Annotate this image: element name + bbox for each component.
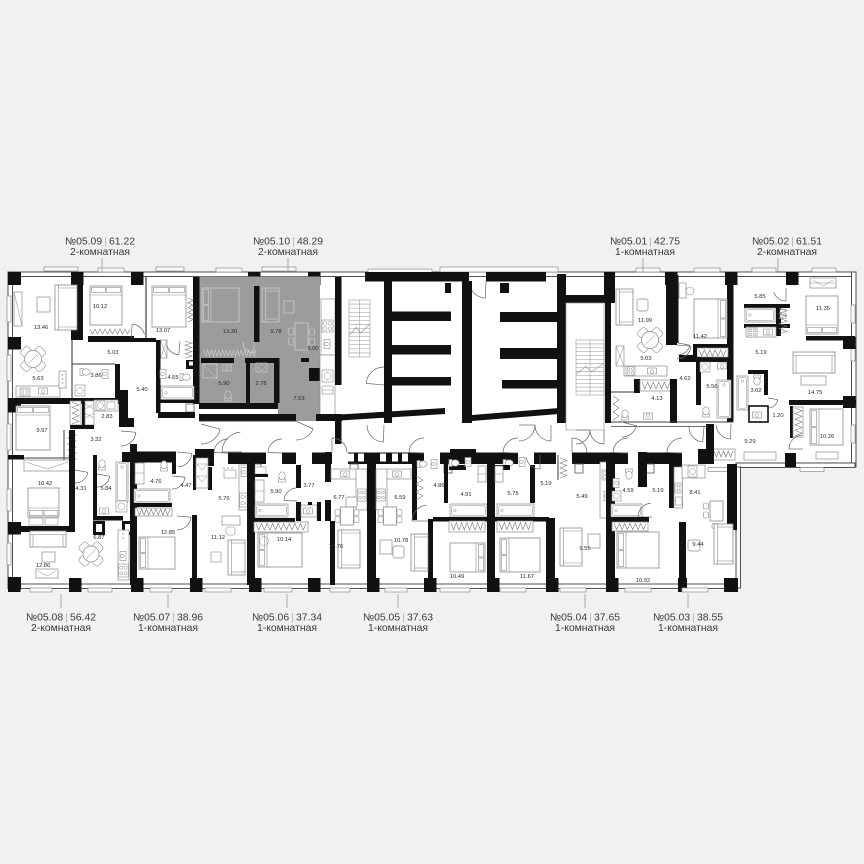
svg-text:№05.06 | 37.34: №05.06 | 37.34: [252, 613, 322, 624]
svg-text:5.63: 5.63: [32, 376, 43, 382]
svg-text:12.86: 12.86: [36, 563, 51, 569]
svg-text:5.49: 5.49: [576, 494, 587, 500]
svg-text:4.62: 4.62: [679, 376, 690, 382]
svg-text:2-комнатная: 2-комнатная: [258, 247, 318, 258]
svg-text:11.67: 11.67: [520, 574, 534, 580]
svg-text:1-комнатная: 1-комнатная: [138, 623, 198, 634]
svg-text:6.77: 6.77: [333, 495, 344, 501]
svg-text:5.85: 5.85: [754, 294, 765, 300]
svg-text:№05.07 | 38.96: №05.07 | 38.96: [133, 613, 203, 624]
svg-text:5.90: 5.90: [270, 489, 281, 495]
svg-text:№05.04 | 37.65: №05.04 | 37.65: [550, 613, 620, 624]
svg-text:№05.02 | 61.51: №05.02 | 61.51: [752, 237, 822, 248]
svg-text:№05.05 | 37.63: №05.05 | 37.63: [363, 613, 433, 624]
svg-text:5.75: 5.75: [507, 491, 518, 497]
svg-text:13.30: 13.30: [223, 329, 238, 335]
svg-text:№05.09 | 61.22: №05.09 | 61.22: [65, 237, 135, 248]
svg-text:9.55: 9.55: [579, 546, 590, 552]
svg-text:9.44: 9.44: [692, 542, 704, 548]
svg-text:6.59: 6.59: [394, 495, 405, 501]
svg-text:10.78: 10.78: [394, 538, 409, 544]
svg-text:10.26: 10.26: [820, 434, 835, 440]
svg-text:9.29: 9.29: [744, 439, 755, 445]
svg-text:12.85: 12.85: [161, 530, 176, 536]
svg-text:1-комнатная: 1-комнатная: [658, 623, 718, 634]
svg-text:4.31: 4.31: [75, 486, 86, 492]
svg-text:13.07: 13.07: [156, 328, 171, 334]
svg-text:6.87: 6.87: [93, 535, 104, 541]
svg-text:14.75: 14.75: [808, 390, 823, 396]
svg-text:5.03: 5.03: [107, 350, 118, 356]
svg-text:1-комнатная: 1-комнатная: [257, 623, 317, 634]
svg-text:№05.03 | 38.55: №05.03 | 38.55: [653, 613, 723, 624]
svg-text:9.00: 9.00: [307, 346, 318, 352]
svg-text:10.12: 10.12: [93, 304, 108, 310]
svg-text:9.97: 9.97: [36, 428, 47, 434]
svg-text:5.56: 5.56: [706, 384, 717, 390]
svg-text:4.76: 4.76: [150, 479, 161, 485]
svg-text:11.42: 11.42: [693, 334, 707, 340]
svg-text:2-комнатная: 2-комнатная: [31, 623, 91, 634]
svg-text:5.19: 5.19: [540, 481, 551, 487]
svg-text:4.65: 4.65: [167, 375, 178, 381]
svg-text:1-комнатная: 1-комнатная: [555, 623, 615, 634]
svg-text:10.76: 10.76: [329, 544, 344, 550]
svg-text:7.53: 7.53: [293, 396, 304, 402]
svg-text:1.20: 1.20: [772, 413, 783, 419]
svg-text:10.49: 10.49: [450, 574, 465, 580]
svg-text:11.35: 11.35: [816, 306, 830, 312]
svg-text:5.76: 5.76: [218, 496, 229, 502]
svg-text:1-комнатная: 1-комнатная: [368, 623, 428, 634]
svg-text:11.12: 11.12: [211, 535, 225, 541]
svg-text:4.13: 4.13: [651, 396, 662, 402]
svg-text:9.78: 9.78: [270, 329, 281, 335]
svg-text:3.86: 3.86: [90, 373, 101, 379]
svg-text:4.86: 4.86: [433, 483, 444, 489]
svg-text:3.62: 3.62: [750, 388, 761, 394]
svg-text:5.84: 5.84: [100, 486, 112, 492]
svg-text:5.03: 5.03: [640, 356, 651, 362]
svg-text:4.47: 4.47: [180, 483, 191, 489]
svg-text:13.46: 13.46: [34, 325, 49, 331]
svg-text:2.78: 2.78: [255, 381, 266, 387]
svg-text:2.83: 2.83: [101, 414, 112, 420]
svg-text:10.42: 10.42: [38, 481, 53, 487]
svg-text:2-комнатная: 2-комнатная: [757, 247, 817, 258]
svg-text:№05.08 | 56.42: №05.08 | 56.42: [26, 613, 96, 624]
svg-text:4.59: 4.59: [622, 488, 633, 494]
svg-text:5.19: 5.19: [652, 488, 663, 494]
svg-text:№05.01 | 42.75: №05.01 | 42.75: [610, 237, 680, 248]
svg-text:3.32: 3.32: [90, 437, 101, 443]
svg-text:№05.10 | 48.29: №05.10 | 48.29: [253, 237, 323, 248]
svg-text:8.41: 8.41: [689, 490, 700, 496]
svg-text:2-комнатная: 2-комнатная: [70, 247, 130, 258]
svg-text:3.77: 3.77: [303, 483, 314, 489]
svg-text:10.14: 10.14: [277, 537, 292, 543]
svg-text:5.40: 5.40: [136, 387, 147, 393]
svg-text:11.99: 11.99: [638, 318, 652, 324]
svg-text:5.19: 5.19: [755, 350, 766, 356]
svg-text:4.91: 4.91: [460, 492, 471, 498]
svg-text:1-комнатная: 1-комнатная: [615, 247, 675, 258]
svg-text:10.92: 10.92: [636, 578, 651, 584]
svg-text:5.90: 5.90: [218, 381, 229, 387]
